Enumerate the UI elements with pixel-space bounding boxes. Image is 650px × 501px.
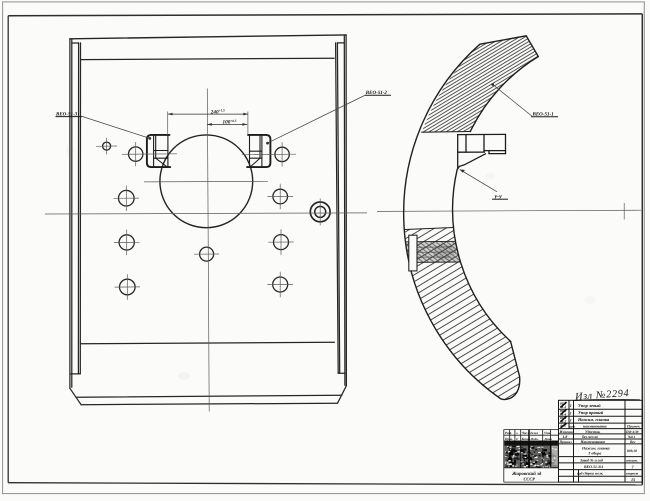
svg-text:ВЕО-51-№1: ВЕО-51-№1: [583, 465, 604, 469]
svg-text:масшт.: масшт.: [625, 458, 638, 462]
svg-text:1: 1: [570, 410, 572, 415]
svg-text:Подп.: Подп.: [530, 437, 539, 441]
svg-text:ВЕО-51-1: ВЕО-51-1: [532, 111, 554, 117]
svg-text:Упор правый: Упор правый: [578, 410, 604, 415]
svg-text:Числ. делал: Числ. делал: [522, 431, 539, 435]
svg-text:Изменил: Изменил: [559, 430, 574, 434]
svg-text:Разр.: Разр.: [505, 431, 512, 435]
svg-text:у-у: у-у: [494, 194, 503, 200]
svg-text:1: 1: [570, 417, 572, 422]
svg-text:Упор левый: Упор левый: [578, 403, 601, 408]
svg-text:Удостов.: Удостов.: [585, 430, 601, 434]
svg-text:Копир.: Копир.: [521, 437, 532, 441]
svg-text:Утв.: Утв.: [544, 431, 551, 435]
svg-text:скорост: скорост: [626, 472, 639, 476]
svg-text:Нажим. планка: Нажим. планка: [581, 446, 610, 450]
svg-text:1: 1: [570, 403, 572, 408]
svg-text:809,18: 809,18: [627, 449, 637, 453]
svg-text:без-чехла: без-чехла: [582, 435, 598, 439]
svg-text:Дата: Дата: [544, 437, 553, 441]
svg-text:Вес: Вес: [629, 440, 636, 444]
svg-text:наименование: наименование: [583, 425, 607, 429]
svg-text:Нажим. планка: Нажим. планка: [577, 417, 610, 422]
svg-text:ВЕО-51-3: ВЕО-51-3: [55, 111, 78, 117]
svg-text:Примеч.: Примеч.: [626, 425, 640, 429]
svg-text:№8.1: №8.1: [627, 435, 636, 439]
svg-text:Т обира: Т обира: [588, 452, 601, 456]
svg-text:1.8: 1.8: [563, 435, 568, 439]
svg-text:вид сборки мелк.: вид сборки мелк.: [577, 472, 604, 476]
svg-text:Наименование: Наименование: [580, 440, 606, 444]
svg-text:15: 15: [631, 477, 635, 482]
svg-text:шт: шт: [570, 425, 576, 429]
svg-text:Пров.: Пров.: [504, 437, 513, 441]
svg-text:ПФ 4/39: ПФ 4/39: [625, 430, 639, 434]
svg-text:Принял: Принял: [559, 440, 572, 444]
svg-text:Завод № и год: Завод № и год: [579, 458, 603, 462]
svg-text:СССР: СССР: [524, 476, 536, 481]
svg-text:ВЕО-51-2: ВЕО-51-2: [365, 90, 388, 96]
